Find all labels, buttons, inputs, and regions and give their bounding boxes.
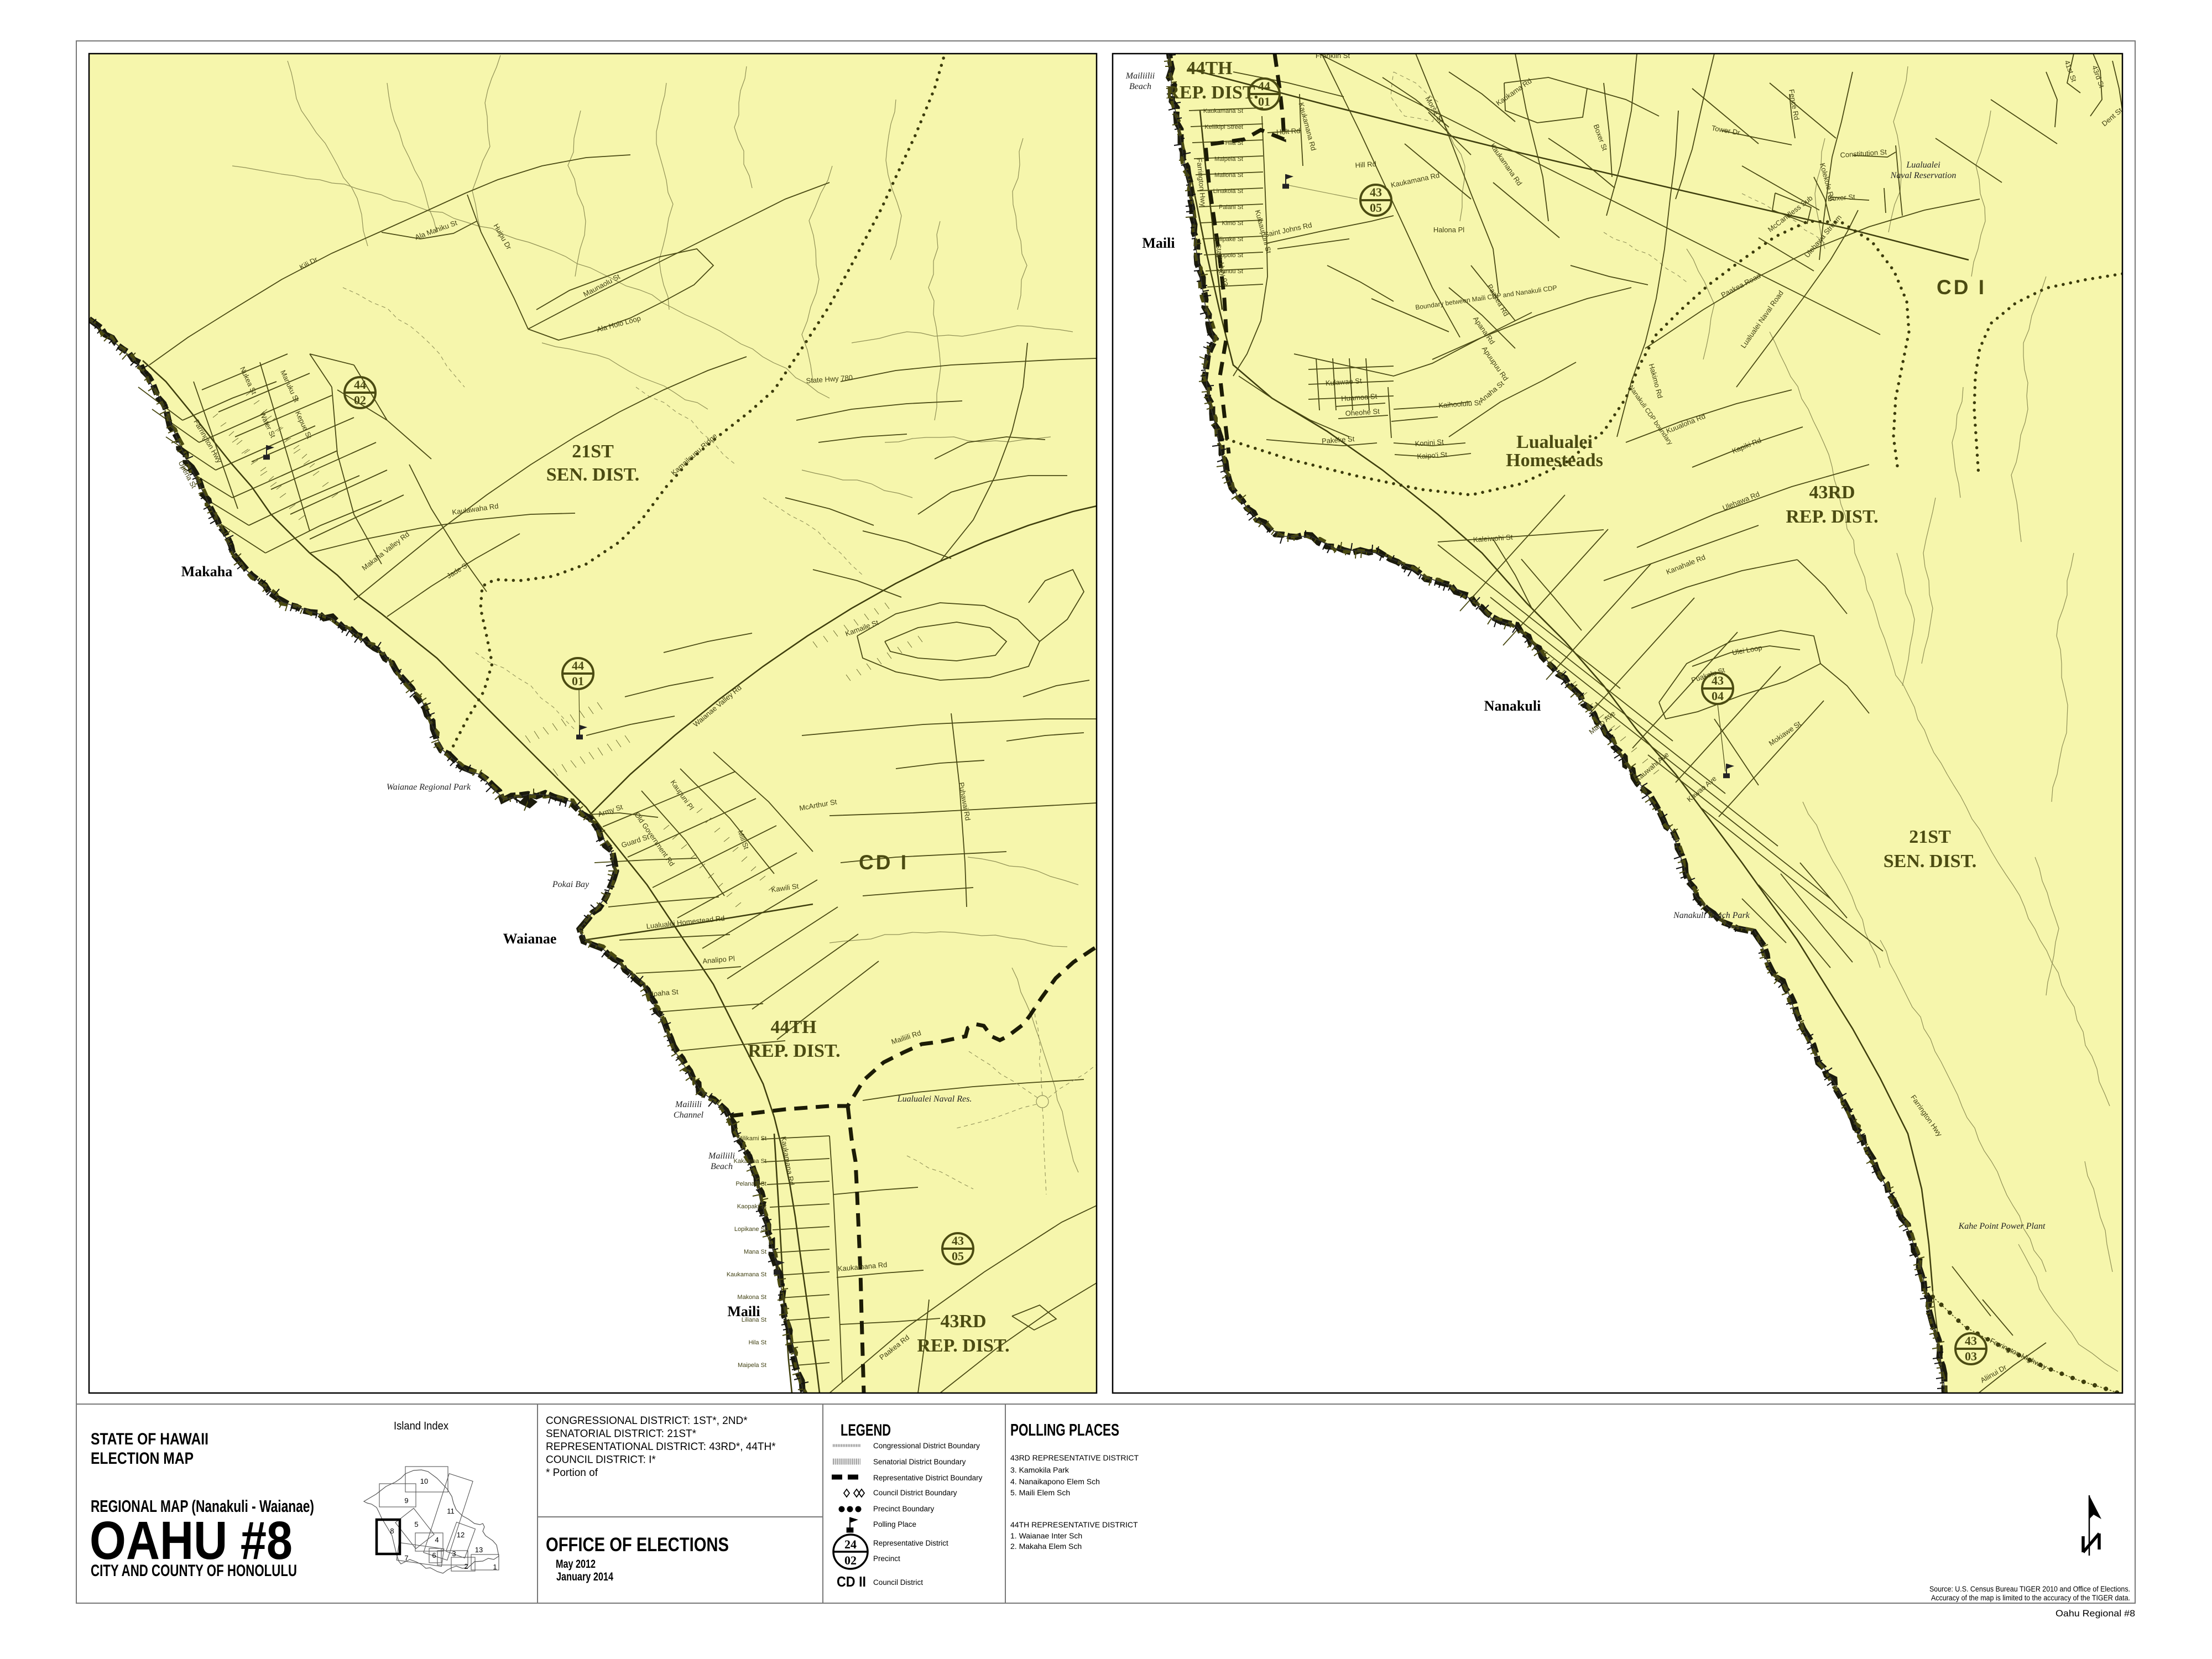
svg-text:03: 03	[1965, 1349, 1977, 1363]
svg-text:Lualualei Naval Res.: Lualualei Naval Res.	[897, 1094, 972, 1104]
svg-text:43: 43	[952, 1234, 964, 1248]
svg-text:05: 05	[952, 1249, 964, 1263]
svg-text:43RD: 43RD	[940, 1311, 986, 1332]
svg-text:CITY AND COUNTY OF HONOLULU: CITY AND COUNTY OF HONOLULU	[91, 1562, 297, 1580]
svg-text:Kakalena St: Kakalena St	[734, 1158, 766, 1165]
svg-text:Precinct: Precinct	[873, 1554, 900, 1563]
svg-text:7: 7	[404, 1554, 408, 1562]
svg-text:4. Nanaikapono Elem Sch: 4. Nanaikapono Elem Sch	[1010, 1477, 1100, 1486]
svg-text:3. Kamokila Park: 3. Kamokila Park	[1010, 1465, 1070, 1474]
svg-text:* Portion of: * Portion of	[546, 1467, 598, 1479]
svg-text:Waianae: Waianae	[503, 931, 557, 947]
svg-text:POLLING PLACES: POLLING PLACES	[1010, 1420, 1119, 1439]
svg-text:44TH: 44TH	[770, 1017, 816, 1037]
svg-text:Mailiilii: Mailiilii	[1125, 71, 1155, 81]
svg-text:Kaopaki St: Kaopaki St	[737, 1203, 766, 1210]
svg-text:Maipela St: Maipela St	[738, 1362, 766, 1369]
svg-text:05: 05	[1370, 201, 1382, 215]
svg-text:21ST: 21ST	[1909, 827, 1951, 847]
svg-text:Palani St: Palani St	[1219, 204, 1243, 211]
svg-text:Waianae Regional Park: Waianae Regional Park	[387, 782, 471, 792]
svg-text:44TH: 44TH	[1186, 58, 1232, 79]
svg-text:LEGEND: LEGEND	[841, 1421, 891, 1439]
svg-text:44TH REPRESENTATIVE DISTRICT: 44TH REPRESENTATIVE DISTRICT	[1010, 1520, 1138, 1529]
svg-text:Mailiili: Mailiili	[675, 1100, 702, 1109]
svg-text:January 2014: January 2014	[556, 1571, 613, 1583]
svg-text:11: 11	[447, 1507, 455, 1515]
svg-text:01: 01	[572, 674, 584, 688]
svg-text:Liopolo St: Liopolo St	[1216, 252, 1243, 259]
svg-text:3: 3	[452, 1550, 456, 1558]
svg-text:Holt Rd: Holt Rd	[1276, 127, 1301, 137]
svg-text:Accuracy of the map is limited: Accuracy of the map is limited to the ac…	[1931, 1594, 2130, 1602]
svg-text:43: 43	[1965, 1334, 1977, 1348]
svg-text:Pokai Bay: Pokai Bay	[552, 880, 589, 889]
svg-text:44: 44	[354, 378, 366, 392]
svg-text:Hila St: Hila St	[1225, 140, 1243, 147]
svg-text:Pelanaki St: Pelanaki St	[735, 1181, 766, 1187]
svg-text:04: 04	[1712, 689, 1724, 703]
svg-text:2: 2	[464, 1562, 468, 1571]
svg-text:Senatorial District Boundary: Senatorial District Boundary	[873, 1458, 966, 1466]
svg-text:SENATORIAL DISTRICT: 21ST*: SENATORIAL DISTRICT: 21ST*	[546, 1428, 697, 1440]
svg-text:Kaukamana St: Kaukamana St	[1203, 108, 1243, 114]
svg-text:Lualualei: Lualualei	[1516, 432, 1593, 452]
svg-text:Kimo St: Kimo St	[1222, 220, 1243, 227]
svg-text:5. Maili Elem Sch: 5. Maili Elem Sch	[1010, 1488, 1070, 1497]
svg-text:Island Index: Island Index	[394, 1420, 448, 1432]
svg-text:Homesteads: Homesteads	[1506, 450, 1603, 471]
svg-text:4: 4	[435, 1536, 439, 1544]
svg-text:Nanakuli: Nanakuli	[1484, 698, 1541, 714]
svg-text:Representative District Bounda: Representative District Boundary	[873, 1474, 983, 1482]
svg-text:24: 24	[844, 1537, 857, 1551]
svg-text:Makona St: Makona St	[737, 1294, 766, 1301]
svg-text:May 2012: May 2012	[556, 1558, 596, 1571]
svg-text:Halona Pl: Halona Pl	[1433, 226, 1464, 234]
svg-text:44: 44	[572, 659, 584, 672]
svg-text:REP. DIST.: REP. DIST.	[748, 1041, 840, 1061]
svg-text:Keliikipi Street: Keliikipi Street	[1204, 124, 1243, 131]
svg-text:REP. DIST.: REP. DIST.	[1166, 82, 1258, 103]
svg-text:10: 10	[420, 1477, 428, 1485]
svg-text:Representative District: Representative District	[873, 1539, 948, 1547]
svg-text:STATE OF HAWAII: STATE OF HAWAII	[91, 1430, 208, 1448]
svg-text:02: 02	[844, 1553, 857, 1567]
svg-text:Maipela St: Maipela St	[1214, 156, 1243, 163]
svg-text:REPRESENTATIONAL DISTRICT: 43R: REPRESENTATIONAL DISTRICT: 43RD*, 44TH*	[546, 1441, 776, 1453]
svg-text:REP. DIST.: REP. DIST.	[917, 1335, 1009, 1356]
svg-text:Linakola St: Linakola St	[1213, 188, 1243, 195]
svg-text:1: 1	[493, 1563, 497, 1571]
svg-text:OFFICE OF ELECTIONS: OFFICE OF ELECTIONS	[546, 1534, 729, 1556]
svg-text:Naval Reservation: Naval Reservation	[1890, 171, 1957, 180]
svg-text:Council District: Council District	[873, 1578, 923, 1587]
svg-text:Kaukamana St: Kaukamana St	[727, 1271, 766, 1278]
svg-text:01: 01	[1258, 95, 1270, 108]
svg-text:1. Waianae Inter Sch: 1. Waianae Inter Sch	[1010, 1531, 1082, 1540]
svg-text:13: 13	[475, 1546, 483, 1554]
svg-text:Nanakuli Beach Park: Nanakuli Beach Park	[1673, 911, 1750, 920]
svg-text:6: 6	[432, 1551, 436, 1559]
svg-text:44: 44	[1258, 79, 1270, 93]
svg-text:43RD: 43RD	[1809, 482, 1855, 503]
svg-text:02: 02	[354, 393, 366, 407]
svg-text:COUNCIL DISTRICT: I*: COUNCIL DISTRICT: I*	[546, 1454, 656, 1466]
svg-text:43: 43	[1370, 185, 1382, 199]
svg-text:Maili: Maili	[1142, 235, 1175, 251]
svg-text:Congressional District Boundar: Congressional District Boundary	[873, 1442, 980, 1450]
svg-text:9: 9	[404, 1496, 408, 1505]
svg-text:Manuu St: Manuu St	[1217, 268, 1243, 275]
svg-text:5: 5	[414, 1520, 418, 1528]
svg-text:Mailiili: Mailiili	[708, 1151, 735, 1161]
svg-text:Beach: Beach	[711, 1162, 733, 1171]
svg-text:2. Makaha Elem Sch: 2. Makaha Elem Sch	[1010, 1542, 1082, 1551]
svg-text:Precinct Boundary: Precinct Boundary	[873, 1505, 935, 1513]
svg-text:CONGRESSIONAL DISTRICT: 1ST*,: CONGRESSIONAL DISTRICT: 1ST*, 2ND*	[546, 1415, 748, 1427]
svg-text:8: 8	[390, 1527, 394, 1535]
svg-text:CD I: CD I	[859, 851, 909, 874]
svg-text:Gilipake St: Gilipake St	[1214, 236, 1243, 243]
svg-text:43RD REPRESENTATIVE DISTRICT: 43RD REPRESENTATIVE DISTRICT	[1010, 1453, 1139, 1462]
svg-text:Source: U.S. Census Bureau TIG: Source: U.S. Census Bureau TIGER 2010 an…	[1929, 1585, 2130, 1593]
svg-text:Liliana St: Liliana St	[742, 1317, 766, 1323]
svg-text:21ST: 21ST	[572, 441, 614, 462]
svg-text:Lopikane St: Lopikane St	[734, 1226, 766, 1233]
svg-text:Council District Boundary: Council District Boundary	[873, 1489, 957, 1497]
svg-text:Kahe Point Power Plant: Kahe Point Power Plant	[1958, 1222, 2046, 1231]
svg-text:REP. DIST.: REP. DIST.	[1786, 507, 1878, 527]
svg-text:12: 12	[457, 1531, 465, 1539]
svg-text:Beach: Beach	[1129, 82, 1151, 91]
svg-text:Channel: Channel	[674, 1110, 704, 1120]
svg-text:Hila St: Hila St	[749, 1339, 766, 1346]
svg-text:CD I: CD I	[1937, 276, 1986, 299]
svg-text:SEN. DIST.: SEN. DIST.	[1884, 851, 1977, 872]
svg-text:Polling Place: Polling Place	[873, 1520, 916, 1528]
svg-text:Hill Rd: Hill Rd	[1355, 160, 1376, 170]
svg-text:Makaha: Makaha	[181, 564, 232, 580]
svg-text:Mana St: Mana St	[744, 1249, 766, 1255]
svg-text:ELECTION MAP: ELECTION MAP	[91, 1449, 194, 1468]
svg-text:Maliona St: Maliona St	[1214, 172, 1243, 179]
svg-text:Oahu Regional #8: Oahu Regional #8	[2056, 1608, 2135, 1619]
svg-text:Lualualei: Lualualei	[1906, 160, 1940, 170]
svg-text:CD II: CD II	[837, 1573, 866, 1590]
svg-text:SEN. DIST.: SEN. DIST.	[546, 465, 640, 485]
svg-text:Milikami St: Milikami St	[737, 1135, 766, 1142]
